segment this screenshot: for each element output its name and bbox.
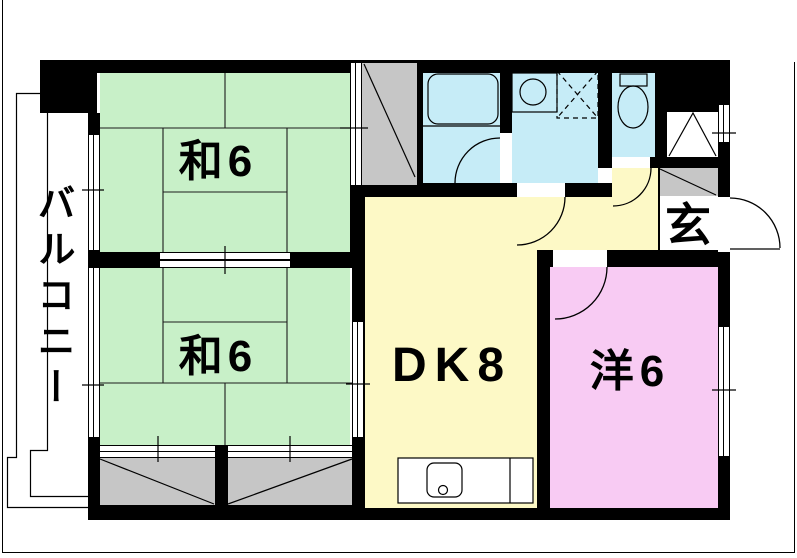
wall-segment [350,185,365,252]
room-label-japanese-lower: 和6 [179,335,257,379]
window-right-top [718,105,730,142]
sliding-door-closet-upper[interactable] [350,63,362,185]
closet-upper-right [362,63,417,185]
wall-segment [500,62,512,133]
wall-segment [537,250,550,508]
room-bath [423,73,500,183]
wall-segment [650,157,655,168]
closet-bottom-right [228,458,352,505]
hallway [612,168,658,197]
room-washroom [512,73,598,183]
wall-segment [565,183,612,197]
sliding-door-between-rooms[interactable] [160,252,290,268]
entrance-door-opening[interactable] [718,197,730,252]
wall-segment [40,60,97,113]
wall-segment [88,252,160,268]
wall-pillar [660,62,718,112]
wall-segment [215,445,228,505]
wall-segment [718,142,730,197]
wall-segment [718,62,730,105]
wall-segment [290,252,365,268]
closet-sliding-door[interactable] [100,445,215,458]
shoe-cabinet [660,168,718,196]
room-label-balcony: バルコニー [27,168,71,428]
room-label-japanese-upper: 和6 [179,140,257,184]
wall-segment [88,113,100,135]
hallway [537,197,658,250]
wall-segment [598,62,612,168]
sliding-door-lower-room-dk[interactable] [352,322,365,437]
storage-trunk-room [667,112,718,157]
western-room-door-opening[interactable] [553,250,607,267]
room-label-dining-kitchen: DK8 [392,342,512,390]
floor-plan: 和6 和6 DK8 洋6 玄 バルコニー [0,0,797,558]
wall-segment [352,437,365,508]
wall-segment [655,157,730,168]
room-toilet [612,73,655,157]
wall-segment [352,268,365,322]
wall-segment [718,456,730,520]
room-label-western: 洋6 [590,350,670,394]
room-label-entrance: 玄 [665,202,711,248]
wall-segment [350,183,517,197]
closet-sliding-door[interactable] [228,445,352,458]
window-western-room [718,327,730,456]
wall-segment [655,62,667,157]
closet-bottom-left [100,458,215,505]
window-balcony-upper [88,135,100,250]
window-balcony-lower [88,268,100,437]
